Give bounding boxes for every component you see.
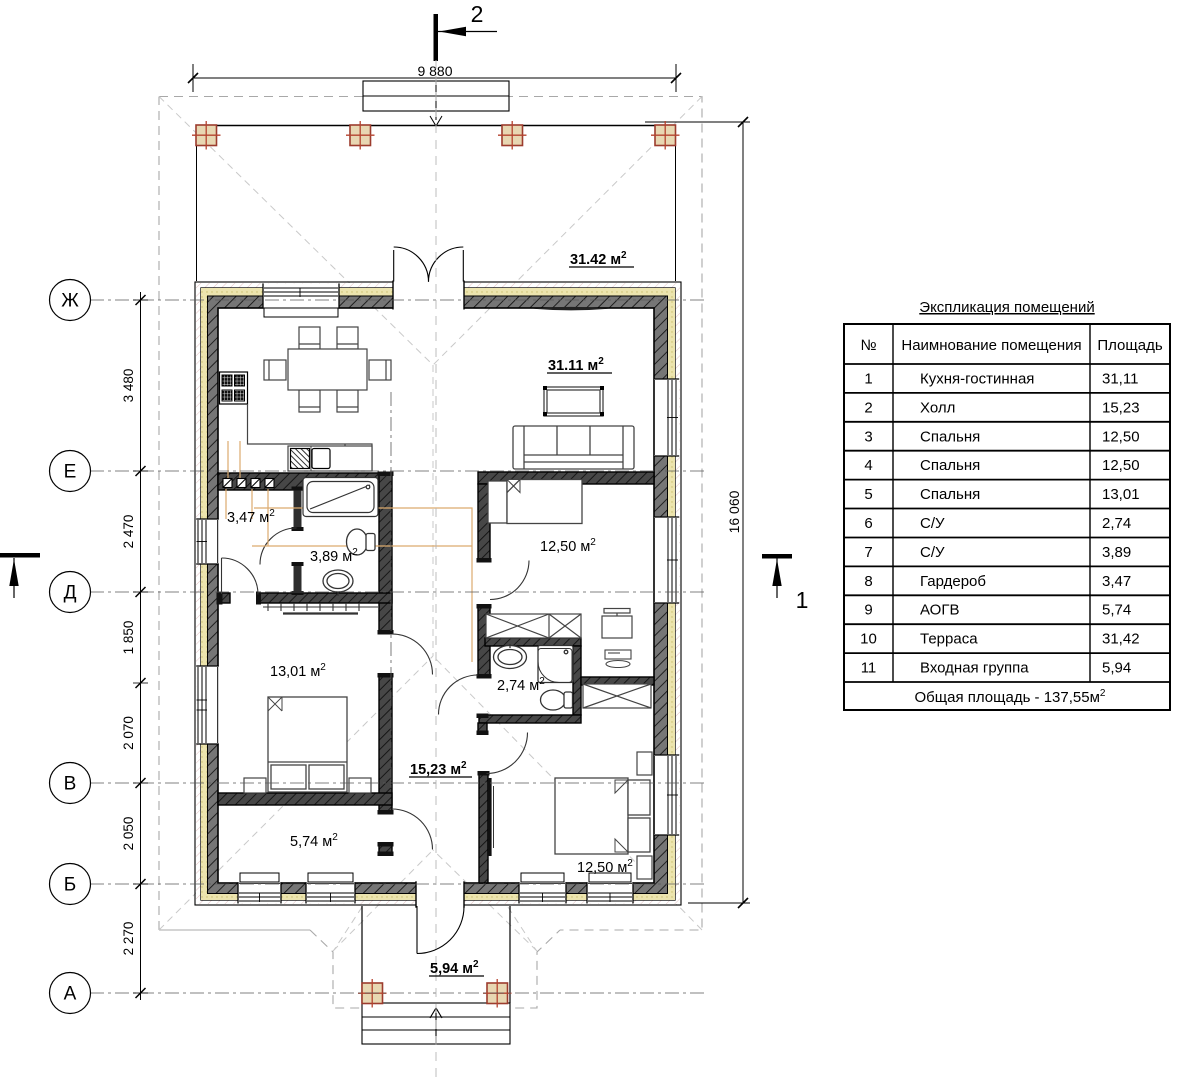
svg-text:2 470: 2 470 (121, 515, 136, 549)
svg-text:3,47 м2: 3,47 м2 (227, 508, 275, 526)
svg-text:7: 7 (864, 544, 872, 561)
svg-text:15,23 м2: 15,23 м2 (410, 760, 467, 778)
svg-text:4: 4 (864, 457, 872, 474)
svg-text:В: В (64, 774, 77, 795)
svg-text:Площадь: Площадь (1097, 337, 1162, 354)
svg-text:АОГВ: АОГВ (920, 602, 959, 619)
svg-text:Е: Е (64, 462, 77, 483)
svg-text:Д: Д (64, 583, 77, 604)
svg-text:С/У: С/У (920, 544, 945, 561)
svg-text:Холл: Холл (920, 399, 955, 416)
svg-text:С/У: С/У (920, 515, 945, 532)
svg-text:12,50: 12,50 (1102, 457, 1140, 474)
svg-text:3,89: 3,89 (1102, 544, 1131, 561)
svg-text:2,74 м2: 2,74 м2 (497, 676, 545, 694)
svg-text:13,01 м2: 13,01 м2 (270, 662, 326, 680)
svg-text:Входная группа: Входная группа (920, 660, 1029, 677)
svg-text:12,50: 12,50 (1102, 428, 1140, 445)
svg-text:5,74: 5,74 (1102, 602, 1131, 619)
svg-text:Ж: Ж (61, 291, 79, 312)
svg-text:5: 5 (864, 486, 872, 503)
svg-text:5,94 м2: 5,94 м2 (430, 959, 479, 977)
svg-text:15,23: 15,23 (1102, 399, 1140, 416)
svg-text:Общая площадь - 137,55м2: Общая площадь - 137,55м2 (915, 688, 1106, 706)
svg-text:3,47: 3,47 (1102, 573, 1131, 590)
svg-text:Спальня: Спальня (920, 457, 980, 474)
svg-text:31,42: 31,42 (1102, 631, 1140, 648)
svg-text:5,74 м2: 5,74 м2 (290, 832, 338, 850)
svg-text:11: 11 (861, 660, 877, 677)
svg-text:Кухня-гостинная: Кухня-гостинная (920, 371, 1034, 388)
svg-text:№: № (860, 337, 876, 354)
svg-text:12,50 м2: 12,50 м2 (577, 858, 633, 876)
svg-text:3 480: 3 480 (121, 369, 136, 403)
svg-text:31.42 м2: 31.42 м2 (570, 250, 627, 268)
svg-text:Спальня: Спальня (920, 428, 980, 445)
svg-text:1 850: 1 850 (121, 621, 136, 655)
svg-text:12,50 м2: 12,50 м2 (540, 537, 596, 555)
svg-text:Наимнование помещения: Наимнование помещения (901, 337, 1081, 354)
svg-text:2: 2 (471, 1, 484, 27)
svg-text:10: 10 (860, 631, 877, 648)
svg-text:3: 3 (864, 428, 872, 445)
svg-text:13,01: 13,01 (1102, 486, 1140, 503)
svg-text:6: 6 (864, 515, 872, 532)
svg-text:8: 8 (864, 573, 872, 590)
svg-text:Б: Б (64, 875, 76, 896)
svg-text:Гардероб: Гардероб (920, 573, 986, 590)
svg-text:31.11 м2: 31.11 м2 (548, 356, 604, 374)
svg-text:2 070: 2 070 (121, 716, 136, 750)
svg-text:Экспликация помещений: Экспликация помещений (919, 299, 1094, 316)
svg-text:Терраса: Терраса (920, 631, 978, 648)
svg-text:9: 9 (864, 602, 872, 619)
svg-text:9 880: 9 880 (417, 63, 452, 79)
svg-text:2 270: 2 270 (121, 922, 136, 956)
svg-text:5,94: 5,94 (1102, 660, 1131, 677)
svg-text:2,74: 2,74 (1102, 515, 1131, 532)
svg-text:3,89 м2: 3,89 м2 (310, 547, 358, 565)
svg-text:Спальня: Спальня (920, 486, 980, 503)
svg-text:16 060: 16 060 (726, 490, 742, 533)
svg-text:31,11: 31,11 (1102, 371, 1138, 388)
svg-text:2: 2 (864, 399, 872, 416)
svg-text:1: 1 (864, 371, 872, 388)
svg-text:А: А (64, 984, 77, 1005)
svg-text:2 050: 2 050 (121, 817, 136, 851)
svg-text:1: 1 (796, 587, 809, 613)
